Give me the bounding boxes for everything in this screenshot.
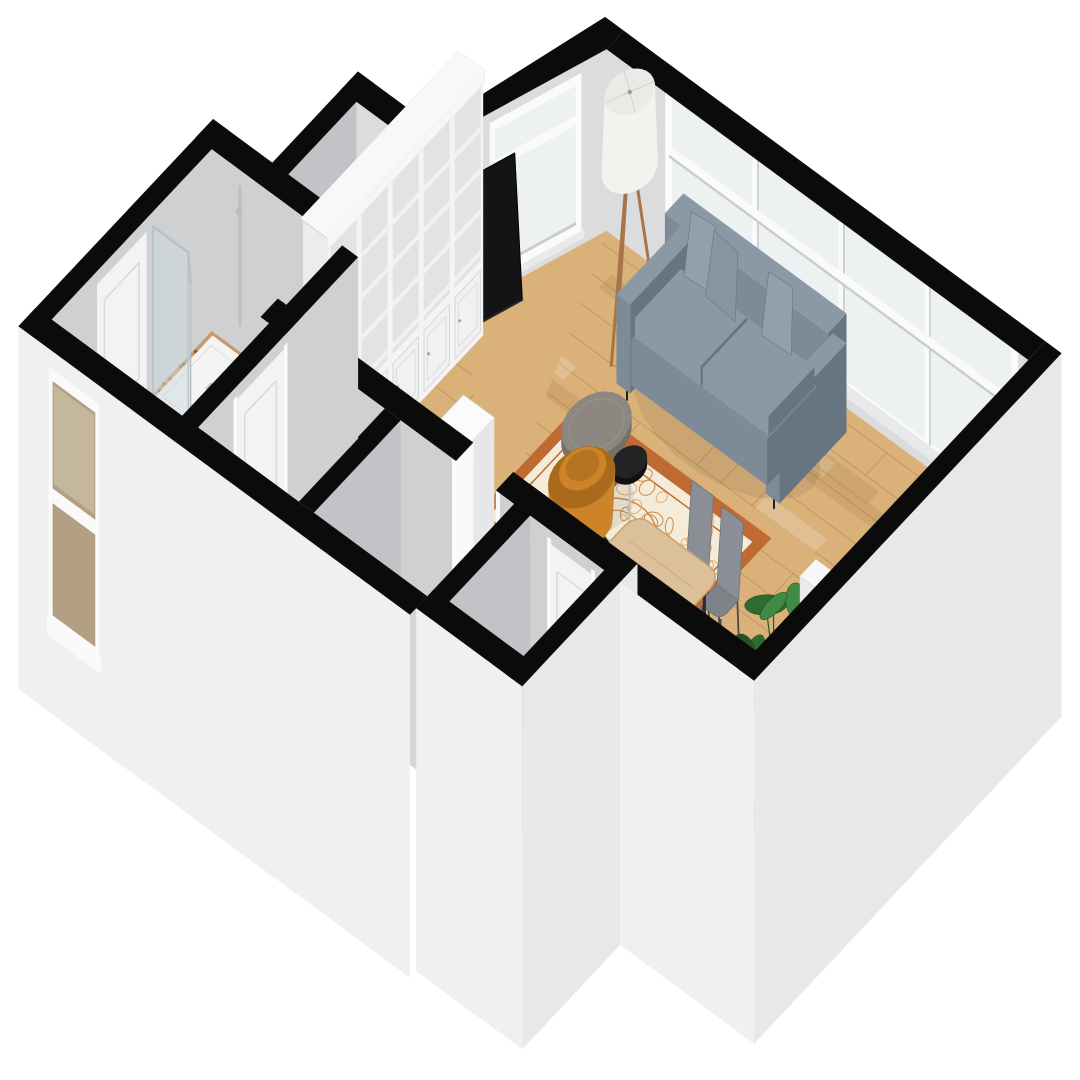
chair-back — [717, 507, 744, 601]
floorplan-figure — [0, 0, 1080, 1080]
wall-exterior — [738, 669, 754, 1044]
door-knob — [427, 352, 430, 355]
floorplan-3d-render — [0, 0, 1080, 1080]
shower-glass — [153, 227, 188, 425]
lamp-finial — [628, 90, 632, 94]
door-knob — [458, 319, 461, 322]
lamp-shade — [602, 69, 658, 195]
